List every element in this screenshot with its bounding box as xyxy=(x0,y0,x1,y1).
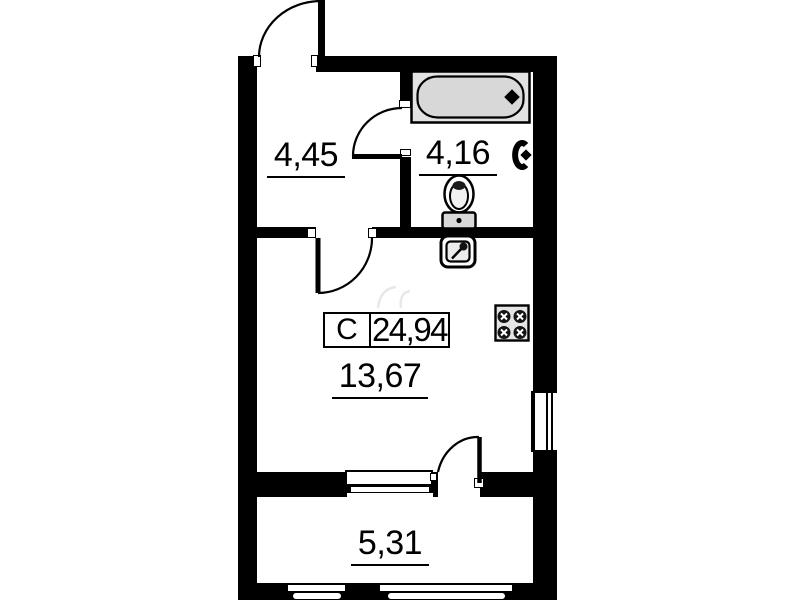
balcony-area-value: 5,31 xyxy=(351,526,429,566)
stove-icon xyxy=(496,306,529,341)
room-door-jamb-right xyxy=(368,228,377,238)
wall-interior-hall-right xyxy=(372,227,533,238)
faint-watermark xyxy=(378,287,410,308)
balcony-window-bottom-right-top xyxy=(380,585,512,591)
window-right-inner-face xyxy=(531,391,535,452)
bathroom-area-label: 4,16 xyxy=(400,136,516,176)
wall-balcony-right xyxy=(480,472,533,497)
balcony-door-arc xyxy=(438,437,479,472)
wall-exterior-top xyxy=(316,56,557,72)
wall-exterior-right-lower xyxy=(533,450,557,600)
window-right-glazing-line-1 xyxy=(546,393,548,450)
room-door-jamb-left xyxy=(307,228,316,238)
floor-plan: 4,45 4,16 С 24,94 13,67 5,31 xyxy=(0,0,799,600)
total-area-value: 24,94 xyxy=(371,314,448,346)
balcony-window-bottom-right-sill xyxy=(388,593,505,599)
entrance-door-arc xyxy=(259,1,321,57)
bathroom-door-jamb-top xyxy=(399,100,411,108)
entrance-door-jamb-right xyxy=(311,55,318,67)
balcony-area-label: 5,31 xyxy=(332,526,448,566)
kitchen-sink-icon xyxy=(441,236,475,267)
bathtub-icon xyxy=(412,72,530,123)
bathroom-area-value: 4,16 xyxy=(419,136,497,176)
hall-area-label: 4,45 xyxy=(248,138,364,178)
towel-dryer-icon xyxy=(515,143,532,167)
window-right-glazing-line-2 xyxy=(551,393,553,450)
balcony-window-bottom-left-top xyxy=(288,585,345,591)
balcony-window-bottom-left-sill xyxy=(293,593,341,599)
total-area-box: С 24,94 xyxy=(323,312,450,348)
room-door-arc xyxy=(318,238,372,293)
unit-type-label: С xyxy=(325,314,371,346)
hall-area-value: 4,45 xyxy=(267,138,345,178)
entrance-door xyxy=(259,0,322,57)
balcony-door-jamb-left xyxy=(430,473,437,481)
entrance-door-jamb-left xyxy=(253,55,261,67)
living-area-label: 13,67 xyxy=(322,359,438,399)
balcony-door-jamb-right xyxy=(474,478,484,488)
balcony-window-frame xyxy=(345,470,433,486)
toilet-icon xyxy=(443,176,476,229)
wall-exterior-right-upper xyxy=(533,56,557,393)
balcony-window-sill-1 xyxy=(351,487,429,492)
balcony-window-sill-2 xyxy=(347,493,433,498)
balcony-door xyxy=(438,437,480,483)
wall-balcony-left xyxy=(257,472,345,497)
room-door xyxy=(318,238,372,293)
living-area-value: 13,67 xyxy=(332,359,429,399)
